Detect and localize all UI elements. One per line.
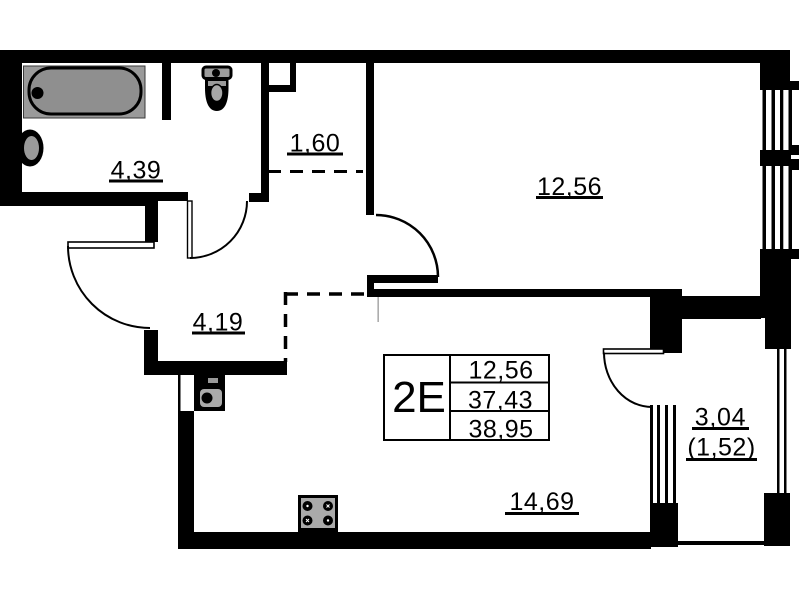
svg-text:2E: 2E bbox=[392, 373, 446, 422]
svg-text:(1,52): (1,52) bbox=[687, 434, 755, 462]
svg-text:12,56: 12,56 bbox=[468, 357, 533, 385]
svg-text:14,69: 14,69 bbox=[509, 488, 574, 516]
svg-text:38,95: 38,95 bbox=[468, 416, 533, 444]
svg-text:37,43: 37,43 bbox=[468, 387, 533, 415]
